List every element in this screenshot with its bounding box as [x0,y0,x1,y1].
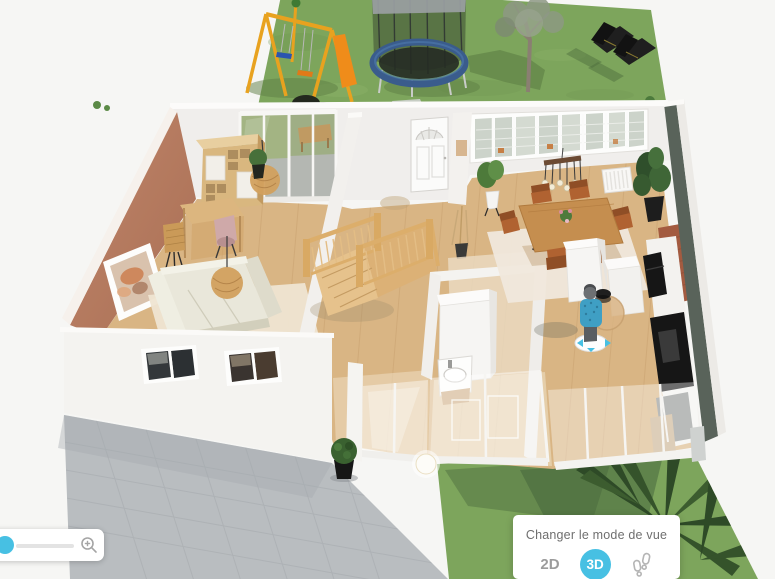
bathroom-front-glass[interactable] [428,370,548,466]
floor-planner-app: Changer le mode de vue 2D 3D [0,0,775,579]
zoom-in-icon[interactable] [80,536,98,559]
mode-3d-button[interactable]: 3D [580,549,611,579]
radiator[interactable] [602,167,633,193]
kitchen-front-glass[interactable] [548,382,706,470]
zoom-slider-track[interactable] [16,544,74,548]
dining-chair[interactable] [569,179,590,200]
back-garden [93,0,667,113]
sphere-lamp[interactable] [412,450,440,478]
view-mode-title: Changer le mode de vue [513,528,680,542]
zoom-slider[interactable] [0,529,104,561]
zoom-slider-handle[interactable] [0,536,14,554]
mode-2d-button[interactable]: 2D [540,556,559,573]
dining-chair[interactable] [531,183,552,204]
front-window[interactable] [141,345,199,384]
3d-viewport[interactable] [0,0,775,579]
front-door[interactable] [411,117,448,192]
pendant-floor-shadow [380,196,410,210]
view-mode-card: Changer le mode de vue 2D 3D [513,515,680,579]
dining-chair[interactable] [546,247,567,270]
front-window[interactable] [224,347,282,386]
mode-walk-button[interactable] [631,552,653,577]
boxwood-pot[interactable] [330,438,358,482]
house [60,99,726,482]
footsteps-icon [631,552,653,577]
net-top-band [372,0,466,14]
door-knob [444,157,447,160]
